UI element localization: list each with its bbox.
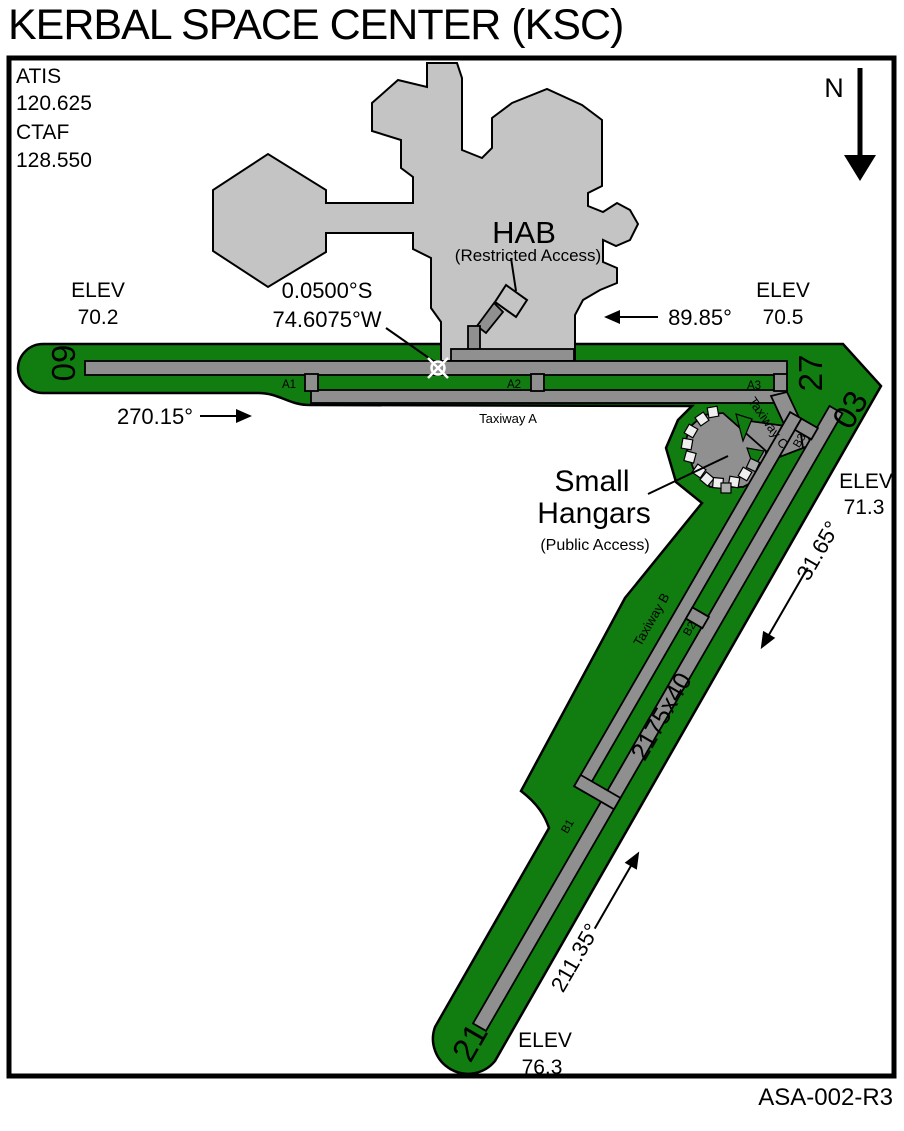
hangars-access-label: (Public Access)	[540, 537, 649, 554]
elev-east-label: ELEV	[756, 279, 810, 302]
taxiway-a	[311, 390, 787, 403]
taxiway-a2-stub	[531, 374, 544, 391]
elev-north-value: 71.3	[844, 496, 885, 519]
refpoint-lat: 0.0500°S	[282, 278, 373, 303]
runway-09-number: 09	[45, 345, 82, 382]
elev-east-value: 70.5	[763, 306, 804, 329]
elev-south-label: ELEV	[518, 1029, 572, 1052]
hangars-label-line1: Small	[554, 465, 629, 498]
hangar-sq-5	[684, 451, 696, 463]
ctaf-value: 128.550	[16, 149, 92, 172]
elev-south-value: 76.3	[522, 1056, 563, 1079]
taxiway-a3-label: A3	[747, 380, 761, 392]
hab-label: HAB	[492, 215, 556, 250]
runway-27-number: 27	[792, 355, 829, 392]
atis-value: 120.625	[16, 92, 92, 115]
heading-270-label: 270.15°	[117, 404, 193, 429]
hangar-sq-4	[681, 438, 693, 450]
taxiway-a3-stub	[774, 374, 787, 391]
refpoint-lon: 74.6075°W	[272, 307, 381, 332]
elev-west-label: ELEV	[71, 279, 125, 302]
diagram-canvas: KERBAL SPACE CENTER (KSC)	[0, 0, 904, 1131]
taxiway-a1-stub	[305, 374, 318, 391]
elev-west-value: 70.2	[78, 306, 119, 329]
hab-access-label: (Restricted Access)	[455, 246, 601, 265]
ctaf-label: CTAF	[16, 121, 69, 144]
doc-reference: ASA-002-R3	[758, 1084, 893, 1111]
hangar-sq-gray-1	[721, 483, 731, 493]
page-title: KERBAL SPACE CENTER (KSC)	[8, 1, 623, 49]
taxiway-a-label: Taxiway A	[479, 411, 537, 426]
north-label: N	[824, 73, 844, 103]
elev-north-label: ELEV	[839, 470, 893, 493]
building-apron-strip	[451, 349, 574, 361]
taxiway-a2-label: A2	[507, 379, 521, 391]
hangars-label-line2: Hangars	[537, 497, 650, 530]
airport-diagram-page: KERBAL SPACE CENTER (KSC)	[0, 0, 904, 1131]
taxiway-a1-label: A1	[282, 379, 296, 391]
heading-89-label: 89.85°	[668, 305, 732, 330]
hangar-sq-2	[707, 406, 719, 418]
atis-label: ATIS	[16, 65, 61, 88]
